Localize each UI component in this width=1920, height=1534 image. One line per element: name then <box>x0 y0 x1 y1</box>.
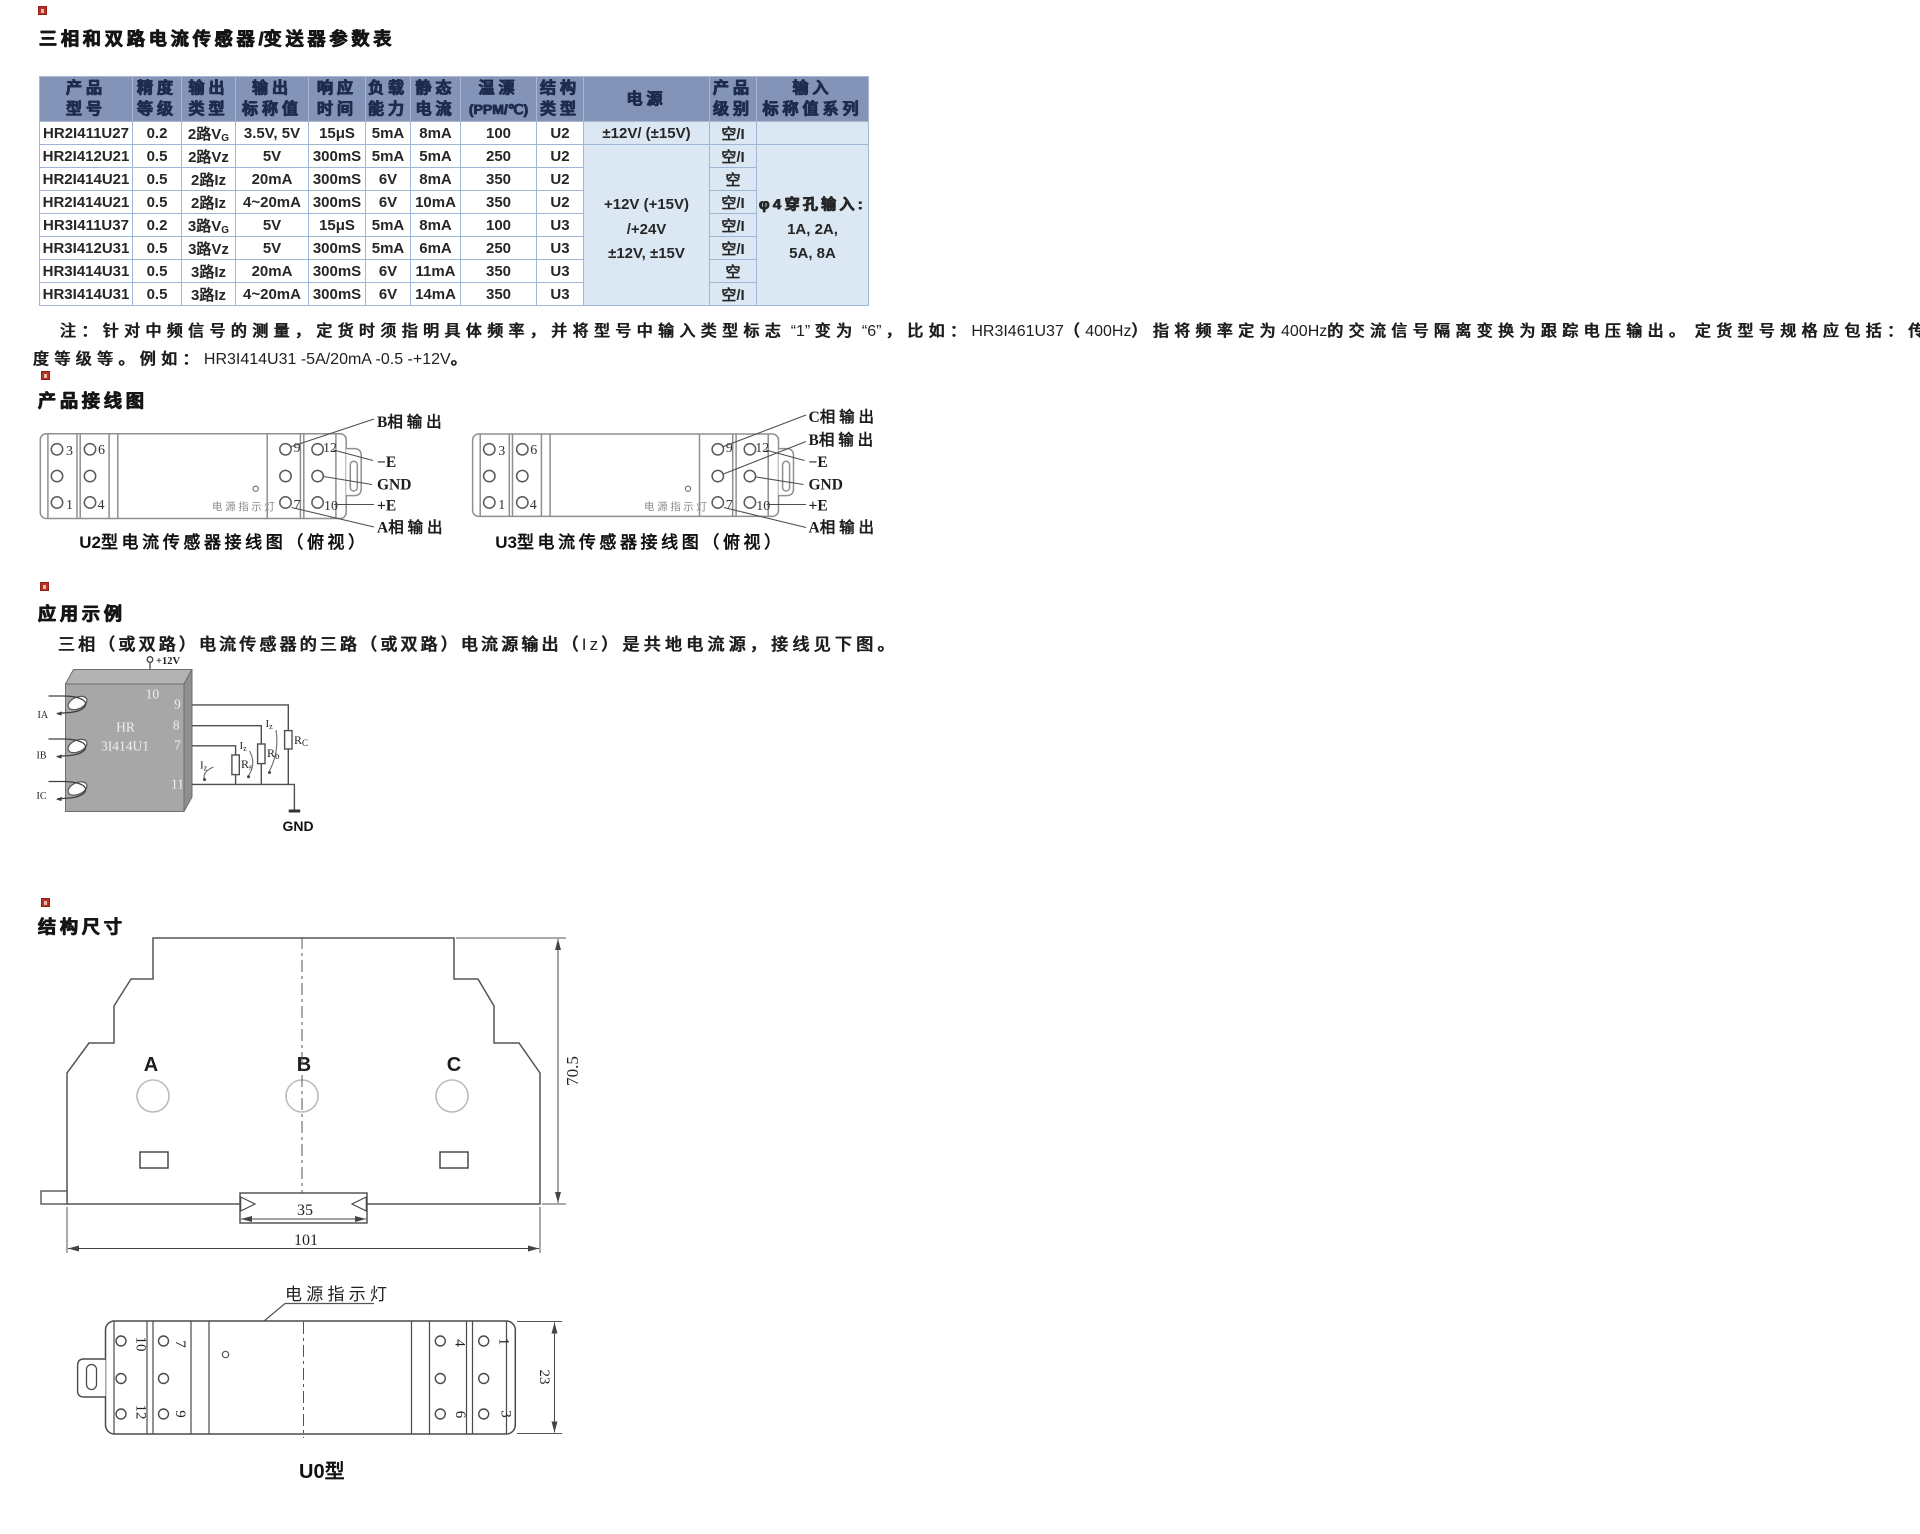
svg-text:3: 3 <box>498 1410 514 1418</box>
svg-text:12: 12 <box>323 441 337 456</box>
svg-text:IB: IB <box>37 751 47 762</box>
svg-text:10: 10 <box>146 687 160 702</box>
svg-text:12: 12 <box>133 1405 149 1420</box>
svg-text:10: 10 <box>324 499 338 514</box>
svg-text:Iz: Iz <box>240 740 248 753</box>
svg-text:8: 8 <box>173 718 180 733</box>
svg-text:A相输出: A相输出 <box>809 518 878 537</box>
svg-text:9: 9 <box>174 697 181 712</box>
svg-text:1: 1 <box>498 498 505 513</box>
svg-text:1: 1 <box>66 498 73 513</box>
svg-text:6: 6 <box>452 1411 468 1419</box>
svg-text:3I414U1: 3I414U1 <box>101 739 149 754</box>
svg-text:23: 23 <box>536 1370 552 1385</box>
svg-text:HR: HR <box>116 720 135 735</box>
svg-text:Iz: Iz <box>266 718 274 731</box>
svg-text:U3型电流传感器接线图（俯视）: U3型电流传感器接线图（俯视） <box>495 532 785 552</box>
svg-text:GND: GND <box>377 477 411 494</box>
svg-text:GND: GND <box>809 477 843 494</box>
svg-text:电源指示灯: 电源指示灯 <box>285 1285 391 1304</box>
svg-text:Rb: Rb <box>267 746 280 761</box>
svg-text:10: 10 <box>133 1337 149 1352</box>
svg-text:12: 12 <box>755 441 769 456</box>
svg-text:7: 7 <box>726 498 733 513</box>
svg-text:−E: −E <box>377 454 396 471</box>
svg-text:−E: −E <box>809 454 828 471</box>
svg-text:电源指示灯: 电源指示灯 <box>212 500 278 513</box>
svg-text:11: 11 <box>171 777 184 792</box>
svg-text:B: B <box>297 1054 311 1076</box>
svg-text:U2型电流传感器接线图（俯视）: U2型电流传感器接线图（俯视） <box>79 532 369 552</box>
svg-text:B相输出: B相输出 <box>809 430 878 449</box>
svg-text:GND: GND <box>282 818 313 834</box>
svg-text:10: 10 <box>756 499 770 514</box>
svg-text:9: 9 <box>172 1410 188 1418</box>
svg-text:6: 6 <box>530 443 537 458</box>
svg-text:35: 35 <box>297 1202 313 1219</box>
svg-text:1: 1 <box>496 1338 512 1346</box>
svg-text:Iz: Iz <box>200 760 208 773</box>
svg-text:IC: IC <box>37 791 47 802</box>
svg-text:+12V: +12V <box>156 656 180 667</box>
svg-text:3: 3 <box>498 444 505 459</box>
svg-text:B相输出: B相输出 <box>377 412 446 431</box>
svg-text:A: A <box>144 1054 158 1076</box>
svg-text:7: 7 <box>172 1340 188 1348</box>
svg-text:4: 4 <box>530 498 537 513</box>
svg-text:U0型: U0型 <box>299 1460 350 1483</box>
svg-text:70.5: 70.5 <box>563 1056 582 1086</box>
svg-text:C相输出: C相输出 <box>809 407 878 426</box>
svg-text:C: C <box>447 1054 461 1076</box>
svg-text:IA: IA <box>38 710 49 721</box>
svg-text:7: 7 <box>294 498 301 513</box>
svg-text:3: 3 <box>66 444 73 459</box>
svg-text:+E: +E <box>377 498 396 515</box>
svg-text:9: 9 <box>294 441 301 456</box>
svg-text:4: 4 <box>452 1339 468 1347</box>
svg-text:6: 6 <box>98 443 105 458</box>
svg-text:+E: +E <box>809 498 828 515</box>
svg-text:RC: RC <box>294 733 308 748</box>
svg-text:101: 101 <box>294 1232 318 1249</box>
svg-text:电源指示灯: 电源指示灯 <box>644 500 710 513</box>
svg-text:A相输出: A相输出 <box>377 518 446 537</box>
svg-text:4: 4 <box>98 498 105 513</box>
svg-text:7: 7 <box>174 738 181 753</box>
